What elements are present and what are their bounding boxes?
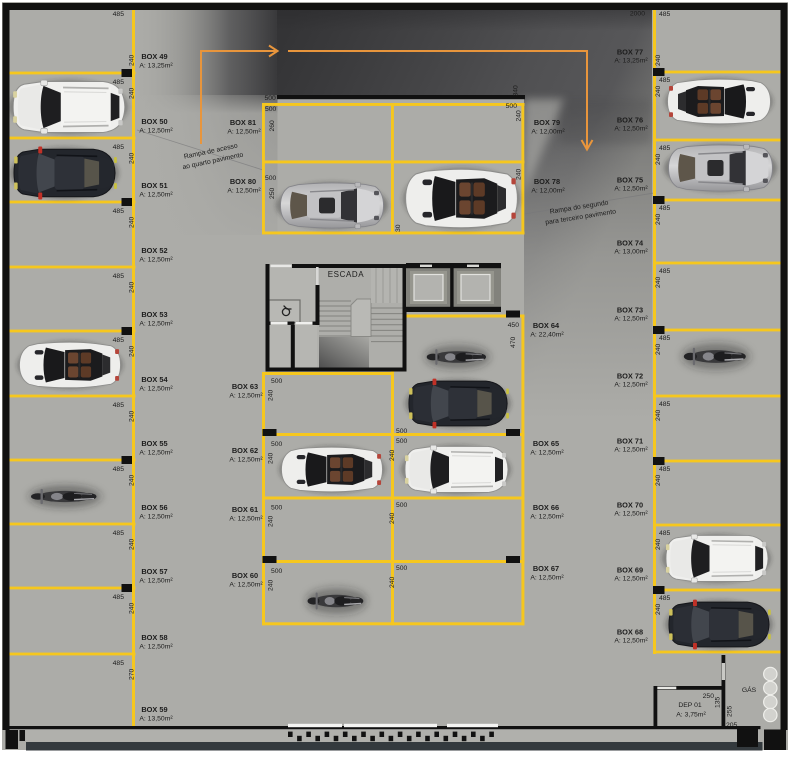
svg-text:A: 12,50m²: A: 12,50m²: [614, 511, 648, 518]
svg-text:250: 250: [703, 693, 715, 700]
svg-text:240: 240: [389, 512, 396, 524]
svg-text:BOX 68: BOX 68: [617, 628, 643, 637]
svg-text:A: 12,50m²: A: 12,50m²: [139, 514, 173, 521]
svg-text:BOX 61: BOX 61: [232, 505, 258, 514]
svg-text:A: 12,50m²: A: 12,50m²: [614, 382, 648, 389]
svg-text:270: 270: [129, 668, 136, 680]
svg-text:A: 12,50m²: A: 12,50m²: [139, 128, 173, 135]
svg-text:A: 12,50m²: A: 12,50m²: [229, 582, 263, 589]
svg-text:500: 500: [271, 505, 283, 512]
svg-text:A: 13,25m²: A: 13,25m²: [139, 63, 173, 70]
svg-text:485: 485: [659, 11, 671, 18]
svg-text:260: 260: [269, 120, 276, 132]
svg-text:240: 240: [655, 409, 662, 421]
svg-text:BOX 53: BOX 53: [141, 310, 167, 319]
svg-text:485: 485: [113, 466, 125, 473]
svg-text:BOX 78: BOX 78: [534, 177, 560, 186]
svg-text:A: 12,50m²: A: 12,50m²: [530, 450, 564, 457]
svg-text:240: 240: [389, 576, 396, 588]
svg-text:ESCADA: ESCADA: [328, 270, 365, 279]
svg-text:240: 240: [655, 603, 662, 615]
svg-text:240: 240: [655, 474, 662, 486]
svg-text:A: 12,50m²: A: 12,50m²: [139, 450, 173, 457]
svg-text:485: 485: [113, 530, 125, 537]
svg-text:BOX 56: BOX 56: [141, 503, 167, 512]
svg-text:BOX 54: BOX 54: [141, 375, 168, 384]
svg-text:485: 485: [659, 205, 671, 212]
svg-text:BOX 77: BOX 77: [617, 48, 643, 57]
svg-text:250: 250: [269, 187, 276, 199]
svg-text:A: 12,50m²: A: 12,50m²: [614, 126, 648, 133]
svg-text:485: 485: [113, 273, 125, 280]
svg-text:240: 240: [129, 87, 136, 99]
svg-text:240: 240: [129, 54, 136, 66]
svg-text:485: 485: [659, 335, 671, 342]
svg-text:A: 22,40m²: A: 22,40m²: [530, 332, 564, 339]
svg-text:A: 12,50m²: A: 12,50m²: [227, 188, 261, 195]
svg-text:485: 485: [113, 11, 125, 18]
svg-text:BOX 55: BOX 55: [141, 439, 167, 448]
svg-text:485: 485: [113, 208, 125, 215]
svg-text:240: 240: [655, 343, 662, 355]
svg-text:240: 240: [268, 389, 275, 401]
svg-text:BOX 58: BOX 58: [141, 633, 167, 642]
svg-text:A: 12,50m²: A: 12,50m²: [229, 393, 263, 400]
svg-text:A: 12,00m²: A: 12,00m²: [531, 188, 565, 195]
svg-text:485: 485: [113, 594, 125, 601]
svg-text:500: 500: [271, 378, 283, 385]
svg-text:A: 12,50m²: A: 12,50m²: [139, 321, 173, 328]
svg-text:A: 12,50m²: A: 12,50m²: [530, 514, 564, 521]
svg-text:A: 13,00m²: A: 13,00m²: [614, 249, 648, 256]
svg-text:485: 485: [659, 77, 671, 84]
svg-text:240: 240: [129, 602, 136, 614]
svg-text:240: 240: [655, 85, 662, 97]
svg-text:A: 13,25m²: A: 13,25m²: [614, 58, 648, 65]
svg-text:240: 240: [268, 452, 275, 464]
svg-text:DEP 01: DEP 01: [678, 702, 702, 709]
svg-text:BOX 75: BOX 75: [617, 176, 643, 185]
svg-text:30: 30: [395, 224, 402, 232]
svg-text:240: 240: [129, 538, 136, 550]
svg-text:BOX 73: BOX 73: [617, 306, 643, 315]
svg-text:BOX 80: BOX 80: [230, 177, 256, 186]
svg-text:240: 240: [268, 515, 275, 527]
svg-text:470: 470: [510, 336, 517, 348]
svg-text:A: 13,50m²: A: 13,50m²: [139, 716, 173, 723]
svg-text:A: 12,00m²: A: 12,00m²: [531, 129, 565, 136]
svg-text:BOX 63: BOX 63: [232, 382, 258, 391]
svg-text:240: 240: [516, 168, 523, 180]
svg-text:500: 500: [506, 103, 518, 110]
svg-text:A: 12,50m²: A: 12,50m²: [614, 316, 648, 323]
svg-text:BOX 51: BOX 51: [141, 181, 167, 190]
svg-text:485: 485: [659, 530, 671, 537]
svg-text:A: 12,50m²: A: 12,50m²: [229, 516, 263, 523]
svg-text:BOX 66: BOX 66: [533, 503, 559, 512]
svg-text:485: 485: [113, 660, 125, 667]
svg-text:485: 485: [113, 337, 125, 344]
svg-text:240: 240: [655, 153, 662, 165]
svg-text:A: 12,50m²: A: 12,50m²: [139, 578, 173, 585]
svg-text:450: 450: [508, 322, 520, 329]
svg-text:BOX 81: BOX 81: [230, 118, 256, 127]
svg-text:BOX 62: BOX 62: [232, 446, 258, 455]
svg-text:A: 12,50m²: A: 12,50m²: [614, 447, 648, 454]
svg-text:A: 12,50m²: A: 12,50m²: [614, 186, 648, 193]
svg-text:240: 240: [129, 410, 136, 422]
svg-text:BOX 50: BOX 50: [141, 117, 167, 126]
svg-text:500: 500: [396, 428, 408, 435]
svg-text:BOX 52: BOX 52: [141, 246, 167, 255]
svg-text:A: 12,50m²: A: 12,50m²: [614, 576, 648, 583]
svg-text:A: 12,50m²: A: 12,50m²: [530, 575, 564, 582]
svg-text:BOX 57: BOX 57: [141, 567, 167, 576]
svg-text:485: 485: [113, 402, 125, 409]
svg-text:485: 485: [113, 144, 125, 151]
svg-text:BOX 74: BOX 74: [617, 239, 644, 248]
svg-text:BOX 49: BOX 49: [141, 52, 167, 61]
svg-text:500: 500: [396, 502, 408, 509]
svg-text:500: 500: [265, 175, 277, 182]
svg-text:240: 240: [655, 538, 662, 550]
svg-text:500: 500: [396, 565, 408, 572]
svg-text:A: 12,50m²: A: 12,50m²: [614, 638, 648, 645]
svg-text:485: 485: [659, 466, 671, 473]
svg-text:A: 3,75m²: A: 3,75m²: [676, 712, 706, 719]
svg-text:240: 240: [129, 345, 136, 357]
svg-text:240: 240: [129, 152, 136, 164]
svg-text:500: 500: [271, 568, 283, 575]
svg-text:BOX 76: BOX 76: [617, 116, 643, 125]
svg-text:240: 240: [655, 276, 662, 288]
svg-text:240: 240: [655, 54, 662, 66]
svg-text:485: 485: [659, 401, 671, 408]
svg-text:GÁS: GÁS: [742, 685, 757, 694]
svg-text:BOX 59: BOX 59: [141, 705, 167, 714]
svg-text:485: 485: [659, 145, 671, 152]
svg-text:A: 12,50m²: A: 12,50m²: [227, 129, 261, 136]
svg-text:135: 135: [715, 696, 722, 708]
svg-text:BOX 70: BOX 70: [617, 501, 643, 510]
svg-text:A: 12,50m²: A: 12,50m²: [139, 257, 173, 264]
svg-text:240: 240: [129, 474, 136, 486]
svg-text:A: 12,50m²: A: 12,50m²: [229, 457, 263, 464]
svg-text:A: 12,50m²: A: 12,50m²: [139, 192, 173, 199]
svg-text:240: 240: [655, 213, 662, 225]
svg-text:485: 485: [659, 268, 671, 275]
svg-text:255: 255: [727, 705, 734, 717]
svg-text:BOX 65: BOX 65: [533, 439, 559, 448]
svg-text:BOX 60: BOX 60: [232, 571, 258, 580]
svg-text:500: 500: [271, 441, 283, 448]
svg-text:500: 500: [265, 106, 277, 113]
svg-text:240: 240: [268, 579, 275, 591]
svg-text:BOX 69: BOX 69: [617, 566, 643, 575]
svg-text:A: 12,50m²: A: 12,50m²: [139, 644, 173, 651]
svg-text:BOX 67: BOX 67: [533, 564, 559, 573]
svg-text:A: 12,50m²: A: 12,50m²: [139, 386, 173, 393]
svg-text:240: 240: [389, 449, 396, 461]
svg-text:485: 485: [659, 595, 671, 602]
svg-text:BOX 64: BOX 64: [533, 321, 560, 330]
svg-text:BOX 72: BOX 72: [617, 372, 643, 381]
svg-text:BOX 79: BOX 79: [534, 118, 560, 127]
svg-text:BOX 71: BOX 71: [617, 437, 643, 446]
svg-text:500: 500: [265, 95, 277, 102]
svg-text:340: 340: [513, 85, 520, 97]
svg-text:240: 240: [516, 110, 523, 122]
svg-text:500: 500: [396, 438, 408, 445]
svg-text:240: 240: [129, 216, 136, 228]
svg-text:2000: 2000: [630, 11, 645, 18]
svg-text:240: 240: [129, 281, 136, 293]
